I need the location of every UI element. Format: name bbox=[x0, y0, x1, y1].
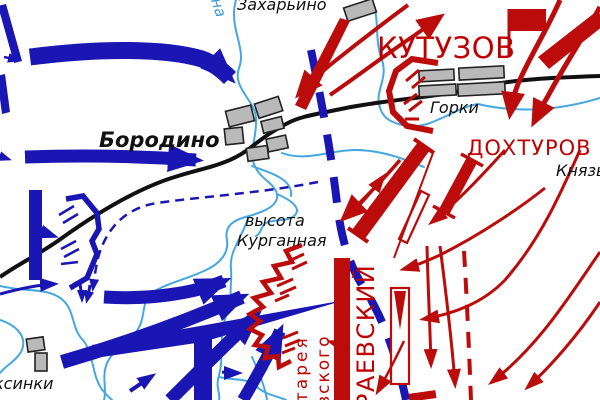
building bbox=[419, 69, 455, 82]
russian-reinforcement-arrow bbox=[492, 252, 600, 382]
french-small-arrow bbox=[0, 158, 8, 159]
french-small-arrow bbox=[87, 285, 90, 300]
french-unit-bar bbox=[0, 74, 10, 114]
building bbox=[261, 117, 284, 134]
russian-unit-bar bbox=[409, 390, 437, 400]
building bbox=[254, 96, 282, 118]
french-unit-bar bbox=[0, 4, 22, 63]
building bbox=[459, 66, 505, 80]
russian-unit-line bbox=[433, 154, 483, 218]
commander-label-raevsky: РАЕВСКИЙ bbox=[351, 264, 380, 400]
french-attack-arrow-southwest bbox=[104, 281, 224, 298]
river-name-label: на bbox=[207, 0, 230, 19]
village-label-knyaz: Князь bbox=[556, 161, 600, 180]
village-label-gorki: Горки bbox=[430, 98, 479, 117]
annotation-battery-line1: батарея bbox=[292, 335, 312, 400]
building bbox=[458, 82, 506, 96]
building bbox=[419, 84, 457, 97]
terrain-label-height-line2: Курганная bbox=[237, 231, 327, 250]
french-unit-bar bbox=[29, 190, 42, 280]
village-label-borodino: Бородино bbox=[99, 128, 220, 152]
french-small-arrow bbox=[222, 372, 238, 373]
terrain-label-height-line1: высота bbox=[245, 211, 305, 230]
river-southwest-2 bbox=[0, 320, 23, 373]
borodino-battle-map: Захарьино Бородино Горки высота Курганна… bbox=[0, 0, 600, 400]
french-small-arrow bbox=[44, 233, 54, 236]
building bbox=[35, 353, 47, 371]
russian-reinforcement-arrow bbox=[427, 246, 431, 364]
building bbox=[266, 135, 288, 152]
map-canvas: Захарьино Бородино Горки высота Курганна… bbox=[0, 0, 600, 400]
french-attack-arrow-north bbox=[30, 50, 230, 78]
building bbox=[224, 127, 244, 145]
building bbox=[26, 337, 45, 352]
french-attack-arrow-west bbox=[25, 156, 196, 160]
russian-boundary-dashed bbox=[464, 251, 471, 400]
commander-label-kutuzov: КУТУЗОВ bbox=[377, 31, 515, 65]
russian-unit-outline-south bbox=[391, 288, 409, 384]
building bbox=[225, 105, 254, 127]
building bbox=[344, 0, 377, 21]
commander-label-dokhturov: ДОХТУРОВ bbox=[467, 136, 592, 160]
russian-unit-bar-raevsky bbox=[334, 258, 350, 400]
annotation-battery-line2: Раевского bbox=[314, 335, 334, 400]
french-small-arrow bbox=[80, 284, 82, 299]
building bbox=[246, 146, 269, 162]
russian-reinforcement-arrow bbox=[528, 302, 600, 387]
napoleon-command-post-icon bbox=[59, 196, 99, 288]
french-small-arrow bbox=[130, 376, 152, 391]
map-labels: Захарьино Бородино Горки высота Курганна… bbox=[0, 0, 600, 400]
village-label-zakharino: Захарьино bbox=[237, 0, 327, 14]
village-label-aleksinki: ксинки bbox=[0, 374, 53, 393]
